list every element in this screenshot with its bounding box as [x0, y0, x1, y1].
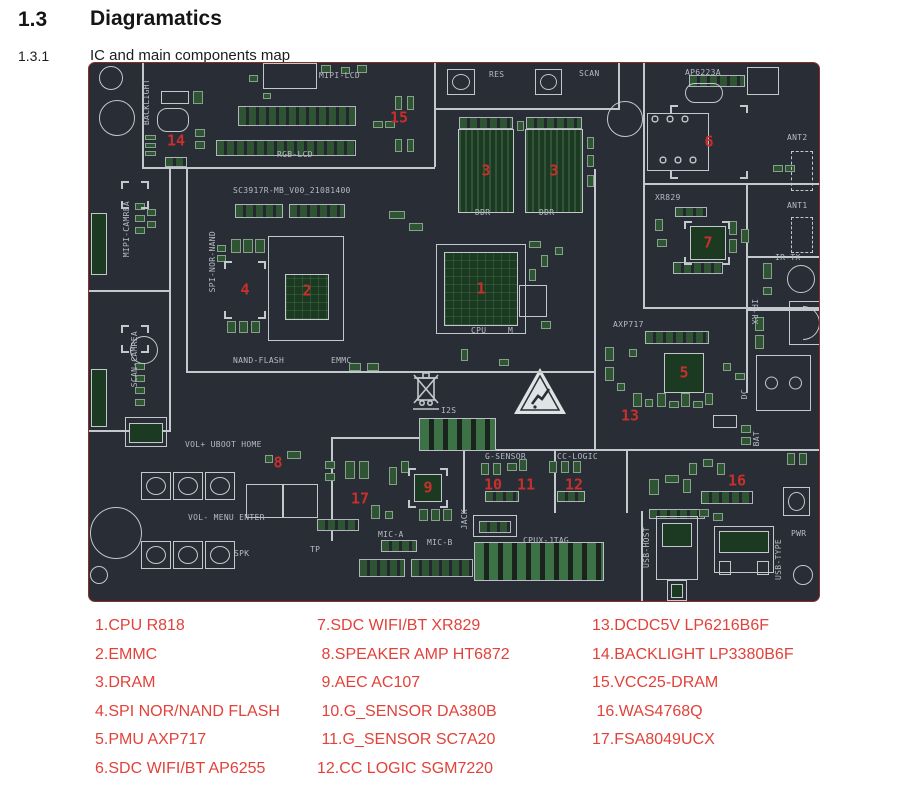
solder-pad	[407, 139, 414, 152]
solder-pad	[713, 513, 723, 521]
solder-pad	[145, 143, 156, 148]
solder-pad	[763, 263, 772, 279]
legend-item: 16.WAS4768Q	[592, 698, 794, 727]
component-outline	[473, 515, 517, 537]
solder-pad	[587, 137, 594, 149]
silkscreen-label: VOL+ UBOOT HOME	[185, 441, 262, 450]
solder-pad	[699, 509, 709, 517]
silkscreen-label: USB-TYPE	[775, 539, 784, 580]
solder-pad	[135, 227, 145, 234]
solder-pad	[517, 121, 524, 131]
solder-pad	[239, 321, 248, 333]
solder-pad	[409, 223, 423, 231]
solder-pad	[193, 91, 203, 104]
silkscreen-label: MIC-B	[427, 539, 453, 548]
legend-item: 3.DRAM	[95, 669, 280, 698]
divider-line	[434, 63, 436, 167]
solder-pad	[249, 75, 258, 82]
solder-pad	[605, 367, 614, 381]
legend-item: 14.BACKLIGHT LP3380B6F	[592, 641, 794, 670]
solder-pad	[683, 479, 691, 493]
silkscreen-label: RGB-LCD	[277, 151, 313, 160]
document-page: 1.3 Diagramatics 1.3.1 IC and main compo…	[0, 0, 908, 790]
connector-strip	[675, 207, 707, 217]
tact-button	[783, 487, 810, 516]
connector-strip	[289, 204, 345, 218]
connector-strip	[701, 491, 753, 504]
component-outline	[713, 415, 737, 428]
component-outline	[263, 63, 317, 89]
divider-line	[643, 63, 645, 309]
legend-item: 5.PMU AXP717	[95, 726, 280, 755]
solder-pad	[763, 287, 772, 295]
solder-pad	[669, 401, 679, 408]
solder-pad	[255, 239, 265, 253]
solder-pad	[729, 221, 737, 235]
section-title: Diagramatics	[90, 7, 222, 31]
divider-line	[463, 451, 465, 513]
component-marker: 16	[728, 474, 746, 489]
solder-pad	[741, 425, 751, 433]
solder-pad	[195, 141, 205, 149]
solder-pad	[681, 393, 690, 407]
component-outline	[757, 561, 769, 575]
legend-item: 4.SPI NOR/NAND FLASH	[95, 698, 280, 727]
subsection-number: 1.3.1	[18, 48, 49, 64]
connector-strip	[235, 204, 283, 218]
solder-pad	[549, 461, 557, 473]
solder-pad	[741, 229, 749, 243]
solder-pad	[195, 129, 205, 137]
silkscreen-label: JACK	[461, 509, 470, 529]
solder-pad	[325, 473, 335, 481]
component-marker: 11	[517, 478, 535, 493]
connector-block	[474, 542, 604, 581]
tact-button	[173, 472, 203, 500]
divider-line	[746, 183, 748, 393]
silkscreen-label: AP6223A	[685, 69, 721, 78]
solder-pad	[529, 269, 536, 281]
legend-item: 9.AEC AC107	[317, 669, 510, 698]
solder-pad	[541, 321, 551, 329]
solder-pad	[135, 387, 145, 394]
silkscreen-label: RES	[489, 71, 504, 80]
legend-item: 17.FSA8049UCX	[592, 726, 794, 755]
solder-pad	[251, 321, 260, 333]
divider-line	[186, 371, 596, 373]
pcb-board: 12334567891011121314151617MIPI-LCDRGB-LC…	[88, 62, 820, 602]
component-marker: 1	[476, 282, 485, 297]
legend-column: 7.SDC WIFI/BT XR829 8.SPEAKER AMP HT6872…	[317, 612, 510, 783]
component-outline	[157, 108, 189, 132]
legend-item: 15.VCC25-DRAM	[592, 669, 794, 698]
component-marker: 6	[704, 135, 713, 150]
mounting-hole	[90, 507, 142, 559]
silkscreen-label: VOL- MENU ENTER	[188, 514, 265, 523]
solder-pad	[407, 96, 414, 110]
solder-pad	[645, 399, 653, 407]
divider-line	[142, 167, 171, 169]
solder-pad	[629, 349, 637, 357]
chip	[91, 369, 107, 427]
silkscreen-label: CPU	[471, 327, 486, 336]
component-outline	[791, 217, 813, 253]
solder-pad	[431, 509, 440, 521]
solder-pad	[145, 135, 156, 140]
solder-pad	[799, 453, 807, 465]
solder-pad	[735, 373, 745, 380]
silkscreen-label: SC3917R-MB_V00_21081400	[233, 187, 351, 196]
solder-pad	[655, 219, 663, 231]
silkscreen-label: CPUX-JTAG	[523, 537, 569, 546]
component-marker: 14	[167, 134, 185, 149]
solder-pad	[359, 461, 369, 479]
solder-pad	[633, 393, 642, 407]
connector-block	[419, 418, 496, 451]
mounting-hole	[99, 66, 123, 90]
component-marker: 12	[565, 478, 583, 493]
silkscreen-label: IR-RX	[749, 299, 758, 325]
legend-column: 13.DCDC5V LP6216B6F14.BACKLIGHT LP3380B6…	[592, 612, 794, 755]
solder-pad	[461, 349, 468, 361]
solder-pad	[507, 463, 517, 471]
component-marker: 8	[273, 456, 282, 471]
solder-pad	[217, 245, 226, 252]
solder-pad	[689, 463, 697, 475]
solder-pad	[265, 455, 273, 463]
component-marker: 15	[390, 111, 408, 126]
silkscreen-label: AXP717	[613, 321, 644, 330]
component-marker: 3	[481, 164, 490, 179]
connector-strip	[359, 559, 405, 577]
silkscreen-label: EMMC	[331, 357, 351, 366]
silkscreen-label: PWR	[791, 530, 806, 539]
solder-pad	[649, 479, 659, 495]
legend-column: 1.CPU R8182.EMMC3.DRAM4.SPI NOR/NAND FLA…	[95, 612, 280, 783]
solder-pad	[325, 461, 335, 469]
legend-item: 7.SDC WIFI/BT XR829	[317, 612, 510, 641]
solder-pad	[729, 239, 737, 253]
tact-button	[447, 69, 475, 95]
silkscreen-label: NAND-FLASH	[233, 357, 284, 366]
solder-pad	[395, 139, 402, 152]
silkscreen-label: SCAN-CAMREA	[131, 331, 140, 387]
silkscreen-label: BAT	[753, 431, 762, 446]
silkscreen-label: G-SENSOR	[485, 453, 526, 462]
solder-pad	[389, 467, 397, 485]
solder-pad	[371, 505, 380, 519]
mounting-hole	[793, 565, 813, 585]
solder-pad	[231, 239, 241, 253]
silkscreen-label: MIPI-CAMREA	[123, 201, 132, 257]
component-marker: 3	[549, 164, 558, 179]
component-outline	[125, 417, 167, 447]
connector-strip	[645, 331, 709, 344]
divider-line	[169, 167, 435, 169]
silkscreen-label: M	[508, 327, 513, 336]
legend-item: 6.SDC WIFI/BT AP6255	[95, 755, 280, 784]
tact-button	[205, 541, 235, 569]
component-marker: 10	[484, 478, 502, 493]
chip	[91, 213, 107, 275]
divider-line	[436, 108, 620, 110]
solder-pad	[287, 451, 301, 459]
component-marker: 2	[302, 284, 311, 299]
solder-pad	[419, 509, 428, 521]
component-outline	[667, 580, 687, 601]
solder-pad	[243, 239, 253, 253]
component-outline	[719, 561, 731, 575]
silkscreen-label: TP	[310, 546, 320, 555]
solder-pad	[145, 151, 156, 156]
silkscreen-label: MIC-A	[378, 531, 404, 540]
solder-pad	[135, 215, 145, 222]
tact-button	[141, 541, 171, 569]
solder-pad	[587, 155, 594, 167]
tact-button	[535, 69, 562, 95]
solder-pad	[443, 509, 452, 521]
solder-pad	[499, 359, 509, 366]
solder-pad	[703, 459, 713, 467]
tact-button	[173, 541, 203, 569]
legend-item: 13.DCDC5V LP6216B6F	[592, 612, 794, 641]
component-marker: 17	[351, 492, 369, 507]
legend-item: 10.G_SENSOR DA380B	[317, 698, 510, 727]
esd-warning-icon	[513, 367, 567, 415]
solder-pad	[573, 461, 581, 473]
tact-button	[205, 472, 235, 500]
solder-pad	[787, 453, 795, 465]
silkscreen-label: XR829	[655, 194, 681, 203]
component-marker: 5	[679, 366, 688, 381]
solder-pad	[367, 363, 379, 371]
connector-strip	[381, 540, 417, 552]
silkscreen-label: IR-TX	[775, 254, 801, 263]
solder-pad	[345, 461, 355, 479]
legend-item: 1.CPU R818	[95, 612, 280, 641]
silkscreen-label: MIPI-LCD	[319, 72, 360, 81]
component-marker: 7	[703, 236, 712, 251]
component-outline	[656, 516, 698, 580]
solder-pad	[693, 401, 703, 408]
solder-pad	[705, 393, 713, 405]
solder-pad	[389, 211, 405, 219]
solder-pad	[755, 335, 764, 349]
solder-pad	[385, 511, 393, 519]
legend-item: 11.G_SENSOR SC7A20	[317, 726, 510, 755]
component-marker: 4	[240, 283, 249, 298]
solder-pad	[665, 475, 679, 483]
solder-pad	[587, 175, 594, 187]
component-outline	[789, 301, 820, 345]
mounting-hole	[90, 566, 108, 584]
section-number: 1.3	[18, 8, 47, 32]
solder-pad	[605, 347, 614, 361]
connector-strip	[317, 519, 359, 531]
connector-strip	[238, 106, 356, 126]
legend-item: 12.CC LOGIC SGM7220	[317, 755, 510, 784]
solder-pad	[657, 239, 667, 247]
solder-pad	[481, 463, 489, 475]
solder-pad	[493, 463, 501, 475]
solder-pad	[147, 209, 156, 216]
divider-line	[186, 169, 188, 373]
connector-strip	[411, 559, 473, 577]
silkscreen-label: BACKLIGHT	[143, 79, 152, 125]
silkscreen-label: SCAN	[579, 70, 599, 79]
solder-pad	[529, 241, 541, 248]
legend-item: 8.SPEAKER AMP HT6872	[317, 641, 510, 670]
component-outline	[161, 91, 189, 104]
silkscreen-label: DC	[741, 389, 750, 399]
silkscreen-label: CC-LOGIC	[557, 453, 598, 462]
divider-line	[626, 451, 628, 513]
divider-line	[594, 169, 596, 451]
silkscreen-label: SPK	[234, 550, 249, 559]
silkscreen-label: I2S	[441, 407, 456, 416]
solder-pad	[263, 93, 271, 99]
component-marker: 13	[621, 409, 639, 424]
divider-line	[89, 290, 169, 292]
component-outline	[747, 67, 779, 95]
solder-pad	[773, 165, 783, 172]
silkscreen-label: DDR	[539, 209, 554, 218]
solder-pad	[657, 393, 666, 407]
component-outline	[685, 83, 723, 103]
tact-button	[141, 472, 171, 500]
silkscreen-label: ANT1	[787, 202, 807, 211]
mounting-hole	[607, 101, 643, 137]
silkscreen-label: DDR	[475, 209, 490, 218]
component-outline	[519, 285, 547, 317]
mounting-hole	[99, 100, 135, 136]
solder-pad	[723, 363, 731, 371]
component-marker: 9	[423, 481, 432, 496]
solder-pad	[541, 255, 548, 267]
component-outline	[756, 355, 811, 411]
solder-pad	[717, 463, 725, 475]
solder-pad	[555, 247, 563, 255]
component-outline	[791, 151, 813, 191]
legend-item: 2.EMMC	[95, 641, 280, 670]
mounting-hole	[787, 265, 815, 293]
connector-strip	[526, 117, 582, 129]
solder-pad	[561, 461, 569, 473]
weee-bin-icon	[411, 369, 441, 411]
connector-strip	[459, 117, 513, 129]
solder-pad	[373, 121, 383, 128]
solder-pad	[227, 321, 236, 333]
solder-pad	[135, 399, 145, 406]
silkscreen-label: USB-HOST	[643, 527, 652, 568]
solder-pad	[741, 437, 751, 445]
divider-line	[169, 167, 171, 431]
solder-pad	[617, 383, 625, 391]
divider-line	[463, 449, 819, 451]
silkscreen-label: ANT2	[787, 134, 807, 143]
silkscreen-label: SPI-NOR-NAND	[209, 231, 218, 292]
connector-strip	[165, 157, 187, 167]
solder-pad	[147, 221, 156, 228]
